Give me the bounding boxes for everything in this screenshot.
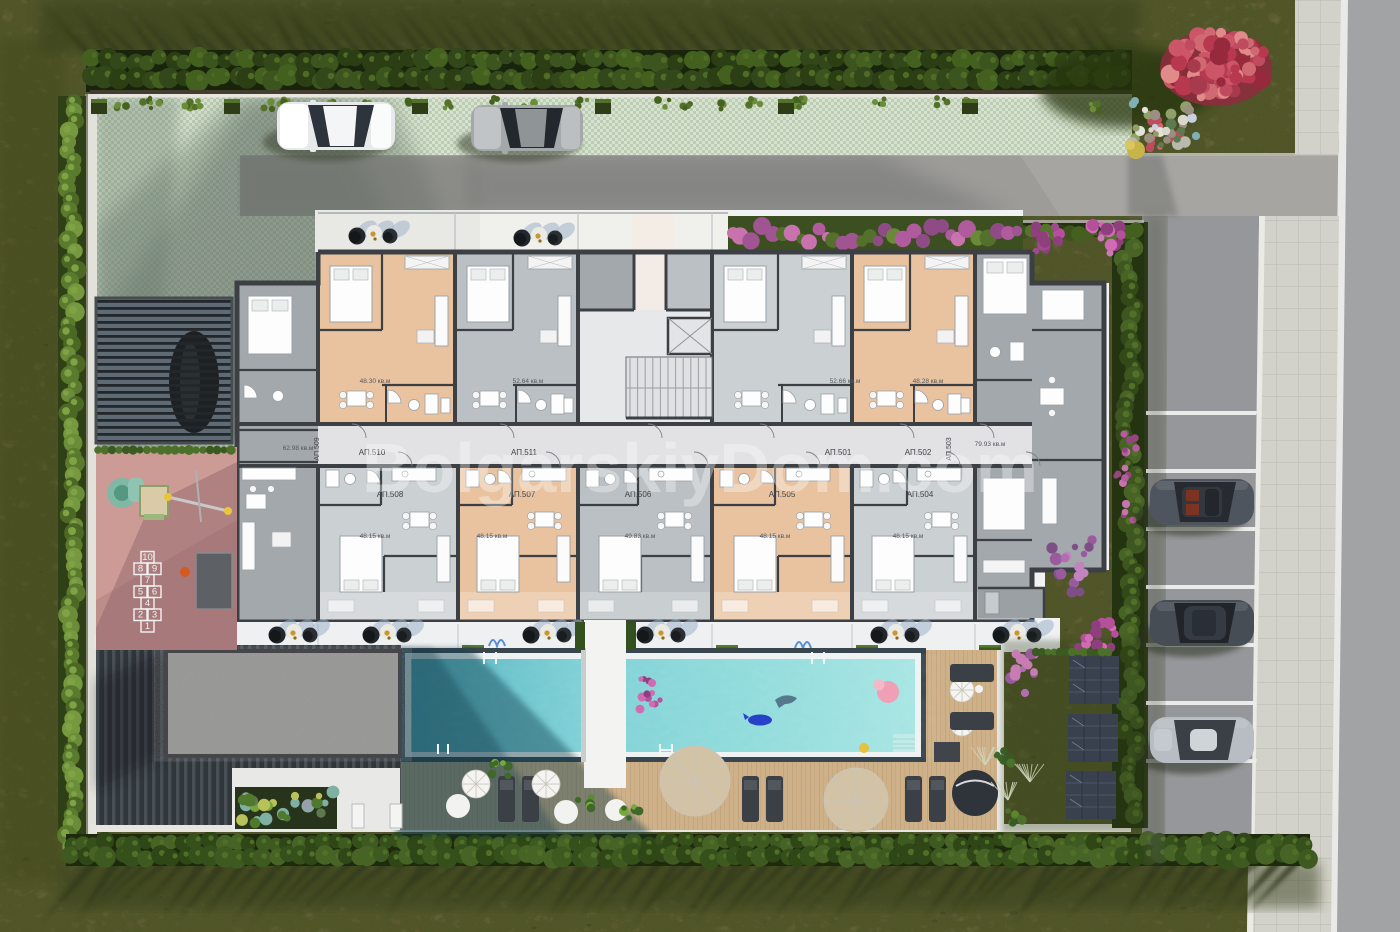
svg-text:3: 3 [152, 610, 157, 621]
svg-text:6: 6 [152, 587, 157, 598]
svg-text:1: 1 [145, 621, 150, 632]
svg-text:5: 5 [138, 587, 143, 598]
svg-text:48.15 кв.м: 48.15 кв.м [477, 533, 508, 540]
svg-text:2: 2 [138, 610, 143, 621]
svg-text:7: 7 [145, 575, 150, 586]
svg-text:10: 10 [142, 552, 153, 563]
svg-text:48.15 кв.м: 48.15 кв.м [893, 533, 924, 540]
svg-text:48.15 кв.м: 48.15 кв.м [760, 533, 791, 540]
svg-text:9: 9 [152, 564, 157, 575]
svg-text:4: 4 [145, 598, 150, 609]
svg-text:АП.509: АП.509 [314, 437, 321, 460]
svg-text:49.83 кв.м: 49.83 кв.м [625, 533, 656, 540]
svg-text:8: 8 [138, 564, 143, 575]
svg-text:48.30 кв.м: 48.30 кв.м [360, 378, 391, 385]
svg-text:52.64 кв.м: 52.64 кв.м [513, 378, 544, 385]
svg-text:48.15 кв.м: 48.15 кв.м [360, 533, 391, 540]
svg-text:48.28 кв.м: 48.28 кв.м [913, 378, 944, 385]
svg-text:52.66 кв.м: 52.66 кв.м [830, 378, 861, 385]
svg-text:BolgarskiyDom.com: BolgarskiyDom.com [362, 429, 1038, 507]
svg-text:62.98 кв.м: 62.98 кв.м [283, 445, 314, 452]
